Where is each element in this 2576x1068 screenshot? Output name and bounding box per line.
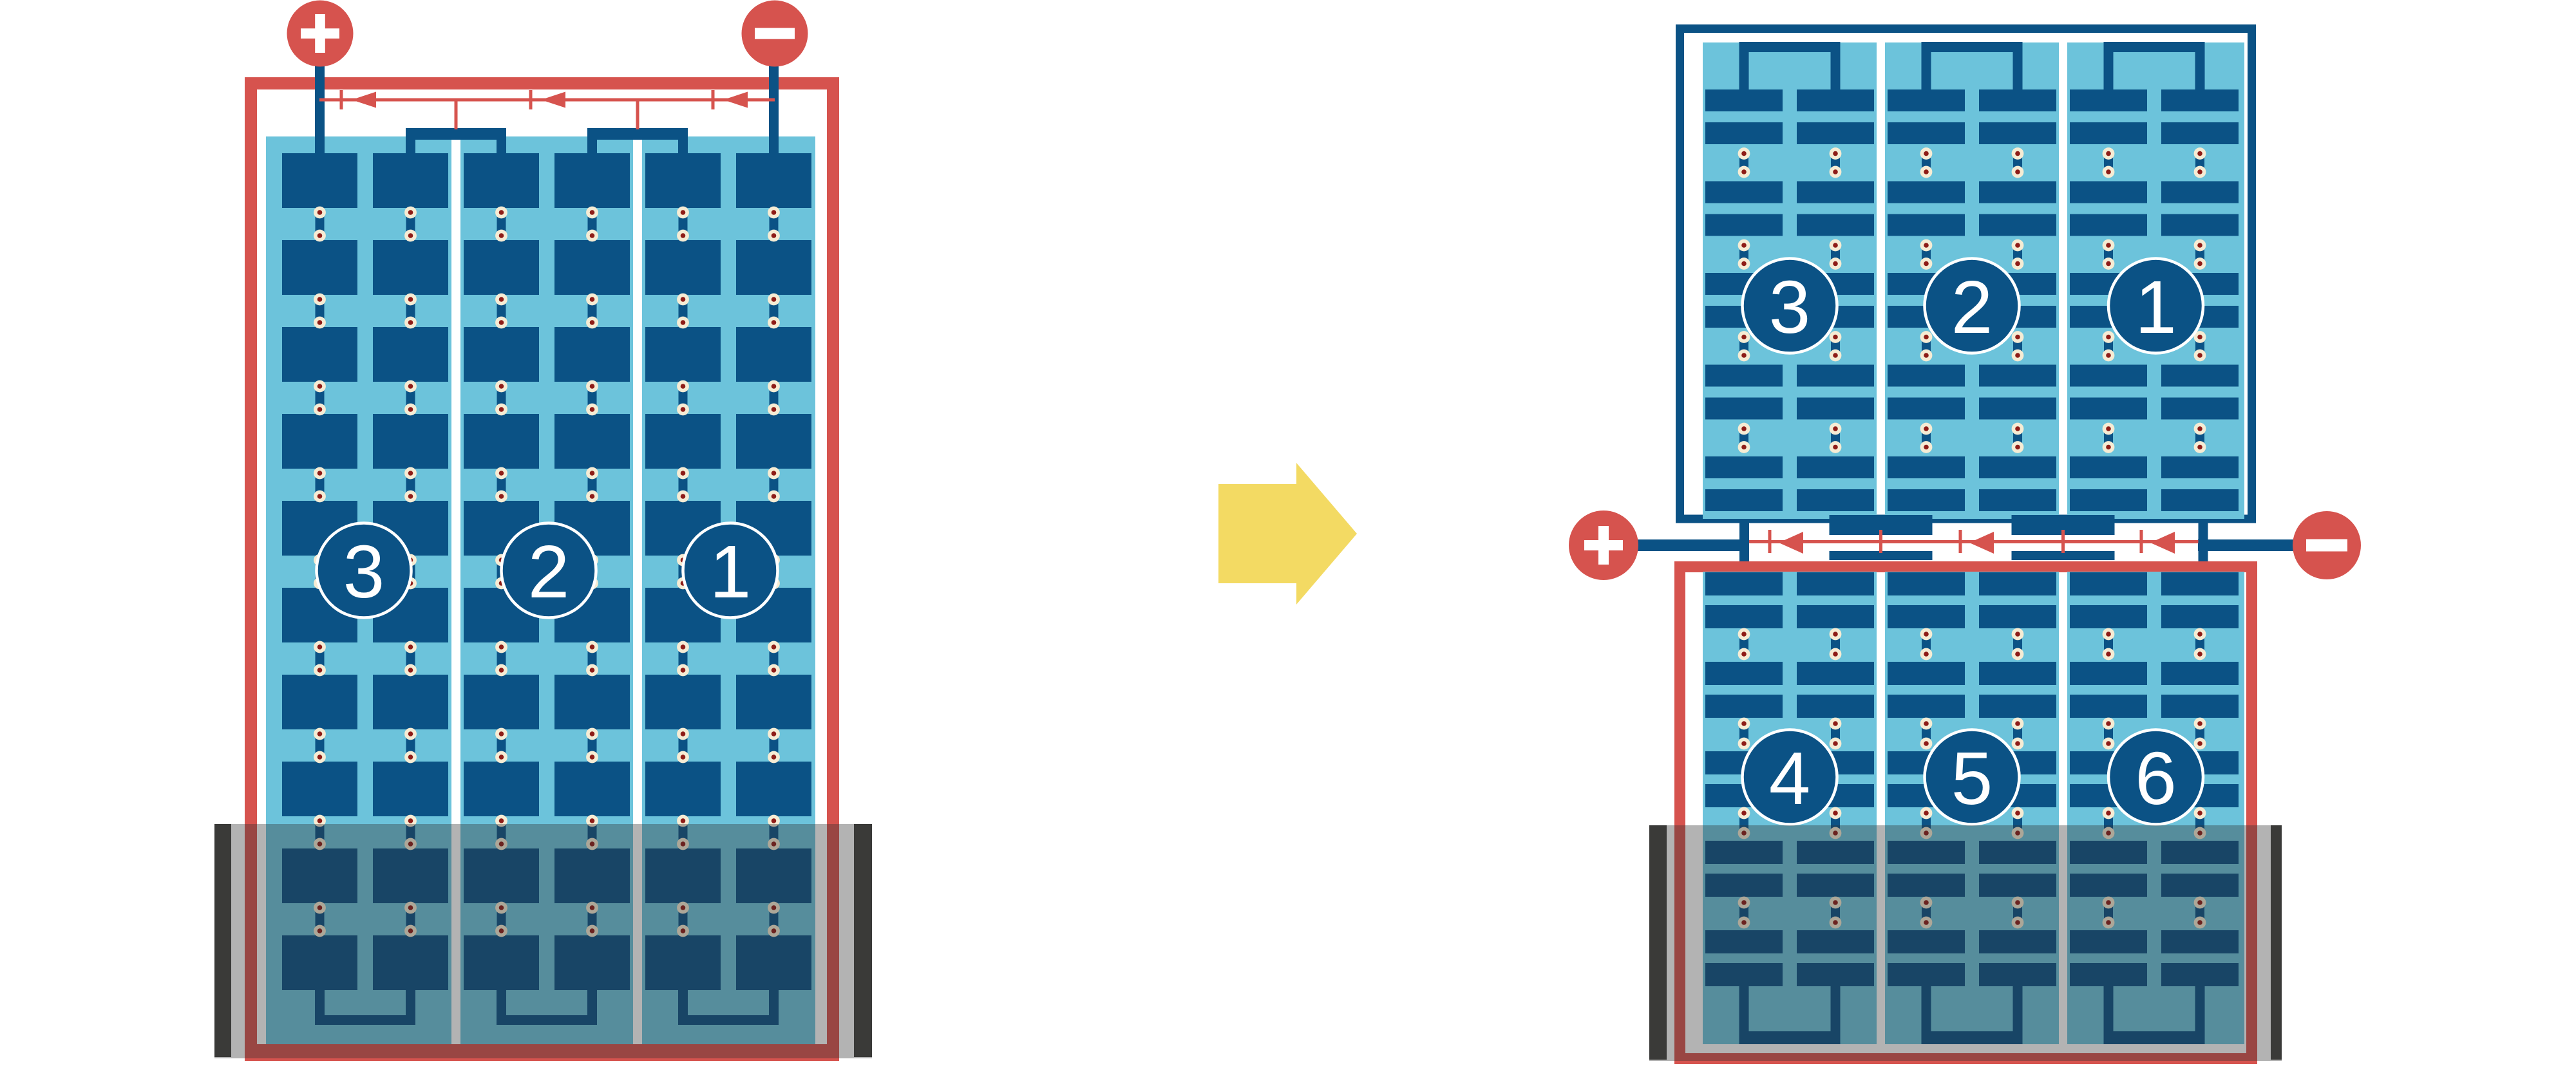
svg-text:2: 2 [528,530,570,614]
svg-text:6: 6 [2135,736,2177,820]
svg-text:2: 2 [1951,265,1993,349]
svg-text:4: 4 [1769,736,1811,820]
svg-text:5: 5 [1951,736,1993,820]
svg-text:1: 1 [710,530,752,614]
svg-text:3: 3 [1769,265,1811,349]
svg-text:3: 3 [343,530,385,614]
svg-text:1: 1 [2135,265,2177,349]
